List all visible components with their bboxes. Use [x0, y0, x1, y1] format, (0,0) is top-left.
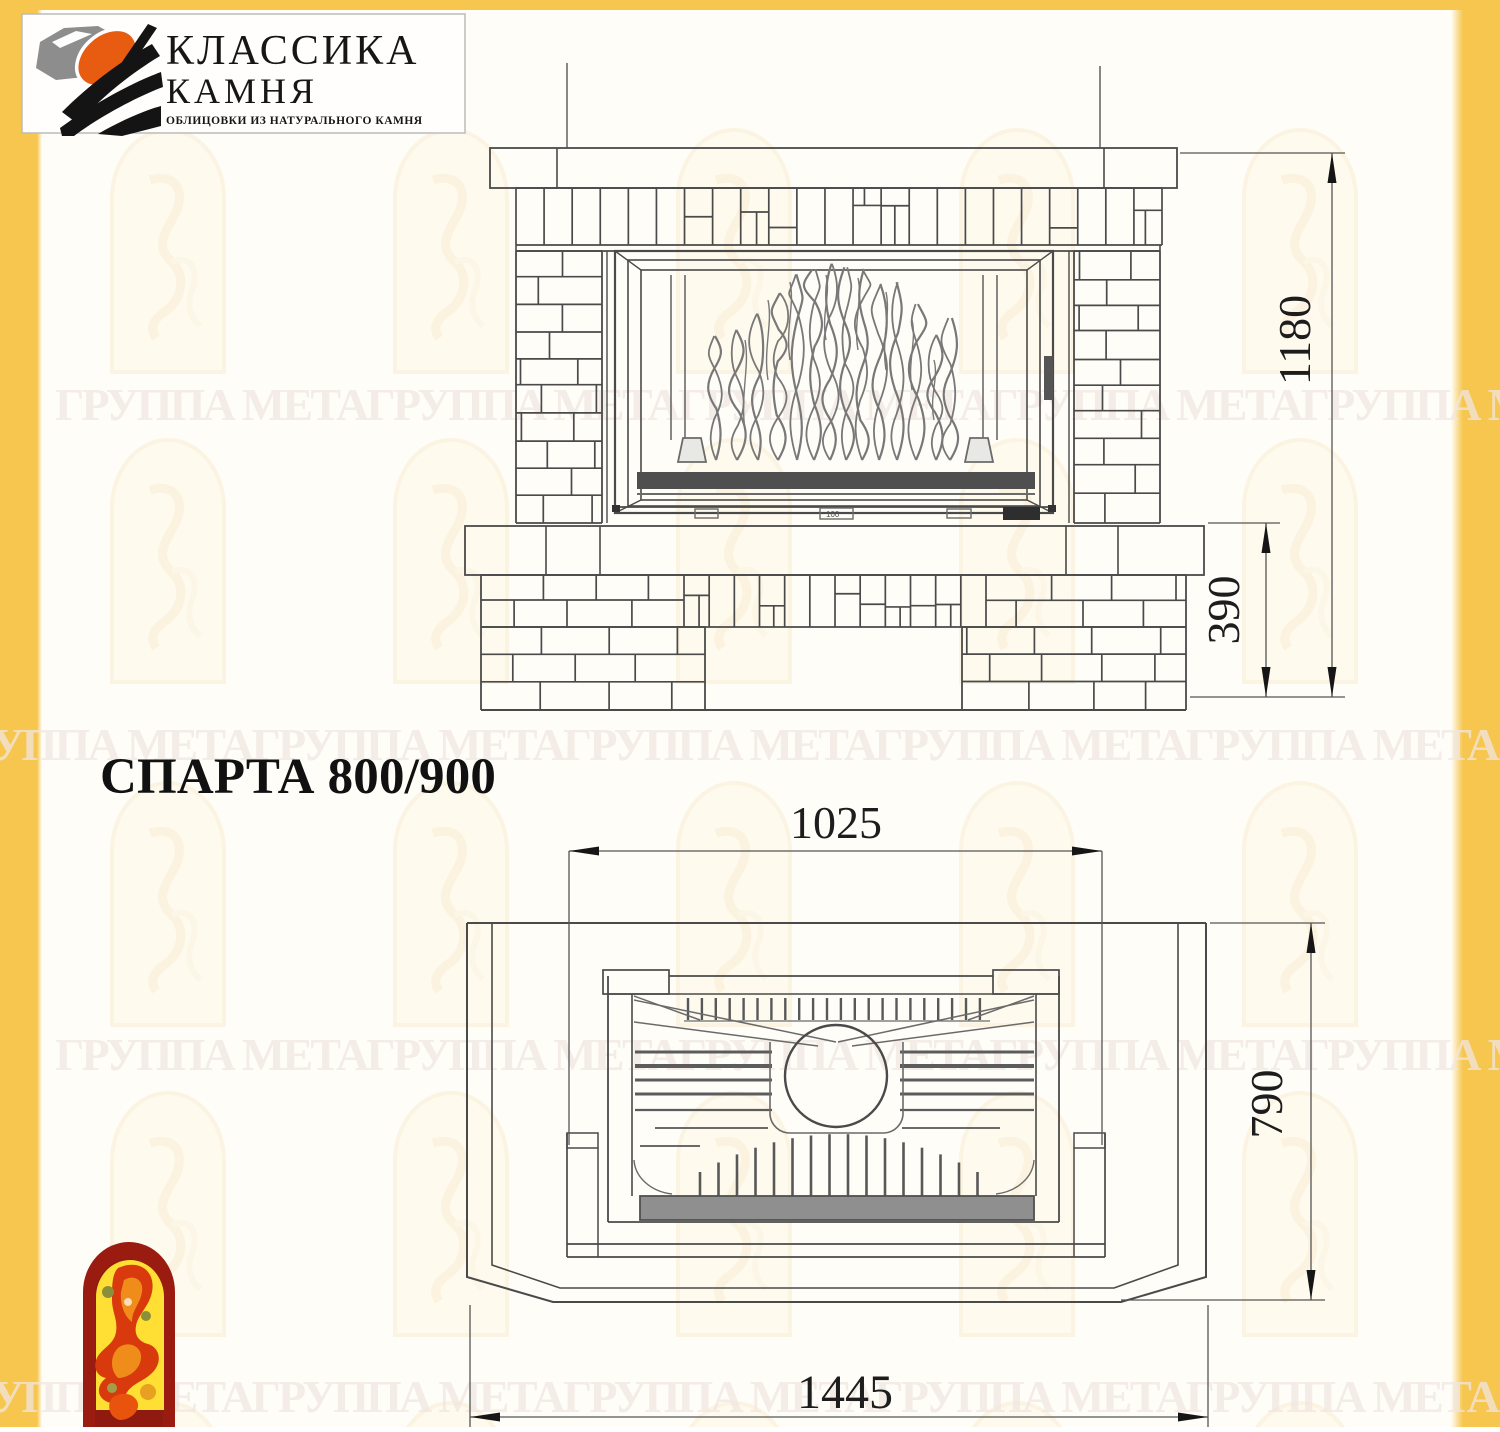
svg-text:КАМНЯ: КАМНЯ [166, 71, 318, 111]
svg-text:СПАРТА 800/900: СПАРТА 800/900 [100, 749, 496, 805]
svg-text:1180: 1180 [1269, 295, 1320, 385]
svg-text:390: 390 [1198, 576, 1249, 645]
svg-text:ГРУППА МЕТАГРУППА МЕТАГРУППА М: ГРУППА МЕТАГРУППА МЕТАГРУППА МЕТАГРУППА … [55, 379, 1500, 430]
svg-text:ГРУППА МЕТАГРУППА МЕТАГРУППА М: ГРУППА МЕТАГРУППА МЕТАГРУППА МЕТАГРУППА … [0, 1371, 1500, 1422]
svg-text:1025: 1025 [790, 797, 882, 848]
svg-text:1445: 1445 [797, 1366, 893, 1419]
svg-text:790: 790 [1241, 1070, 1292, 1139]
svg-text:100: 100 [826, 510, 840, 519]
svg-text:КЛАССИКА: КЛАССИКА [166, 28, 419, 74]
svg-text:ОБЛИЦОВКИ ИЗ НАТУРАЛЬНОГО КАМН: ОБЛИЦОВКИ ИЗ НАТУРАЛЬНОГО КАМНЯ [166, 115, 423, 127]
